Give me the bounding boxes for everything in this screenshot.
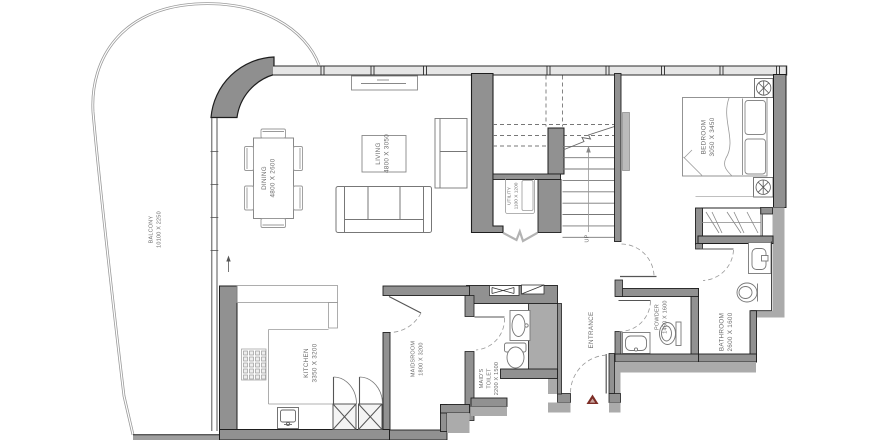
svg-text:KITCHEN: KITCHEN [303, 348, 310, 378]
svg-text:BALCONY: BALCONY [149, 216, 155, 244]
svg-text:MAID'S: MAID'S [479, 369, 485, 389]
svg-text:2200 X 1500: 2200 X 1500 [494, 362, 500, 395]
svg-text:3050 X 3450: 3050 X 3450 [709, 117, 716, 156]
svg-text:LIVING: LIVING [375, 142, 382, 164]
svg-text:BEDROOM: BEDROOM [701, 120, 708, 155]
svg-text:4800 X 3050: 4800 X 3050 [384, 134, 391, 173]
svg-text:BATHROOM: BATHROOM [719, 313, 726, 351]
svg-text:4800 X 2600: 4800 X 2600 [270, 158, 277, 197]
svg-text:TOILET: TOILET [487, 368, 493, 389]
svg-text:1100 X 1200: 1100 X 1200 [514, 182, 520, 209]
svg-text:MAIDSROOM: MAIDSROOM [411, 341, 417, 378]
svg-text:UP: UP [585, 235, 591, 243]
svg-text:ENTRANCE: ENTRANCE [588, 311, 595, 348]
svg-text:3350 X 3200: 3350 X 3200 [312, 343, 319, 382]
svg-text:1450 X 1600: 1450 X 1600 [663, 300, 669, 333]
svg-text:2600 X 1600: 2600 X 1600 [727, 312, 734, 351]
svg-text:DINING: DINING [261, 166, 268, 190]
svg-text:10100 X 2250: 10100 X 2250 [157, 211, 163, 248]
svg-text:UTILITY: UTILITY [507, 186, 513, 205]
svg-text:1800 X 3200: 1800 X 3200 [419, 342, 425, 375]
svg-text:POWDER: POWDER [655, 304, 661, 330]
